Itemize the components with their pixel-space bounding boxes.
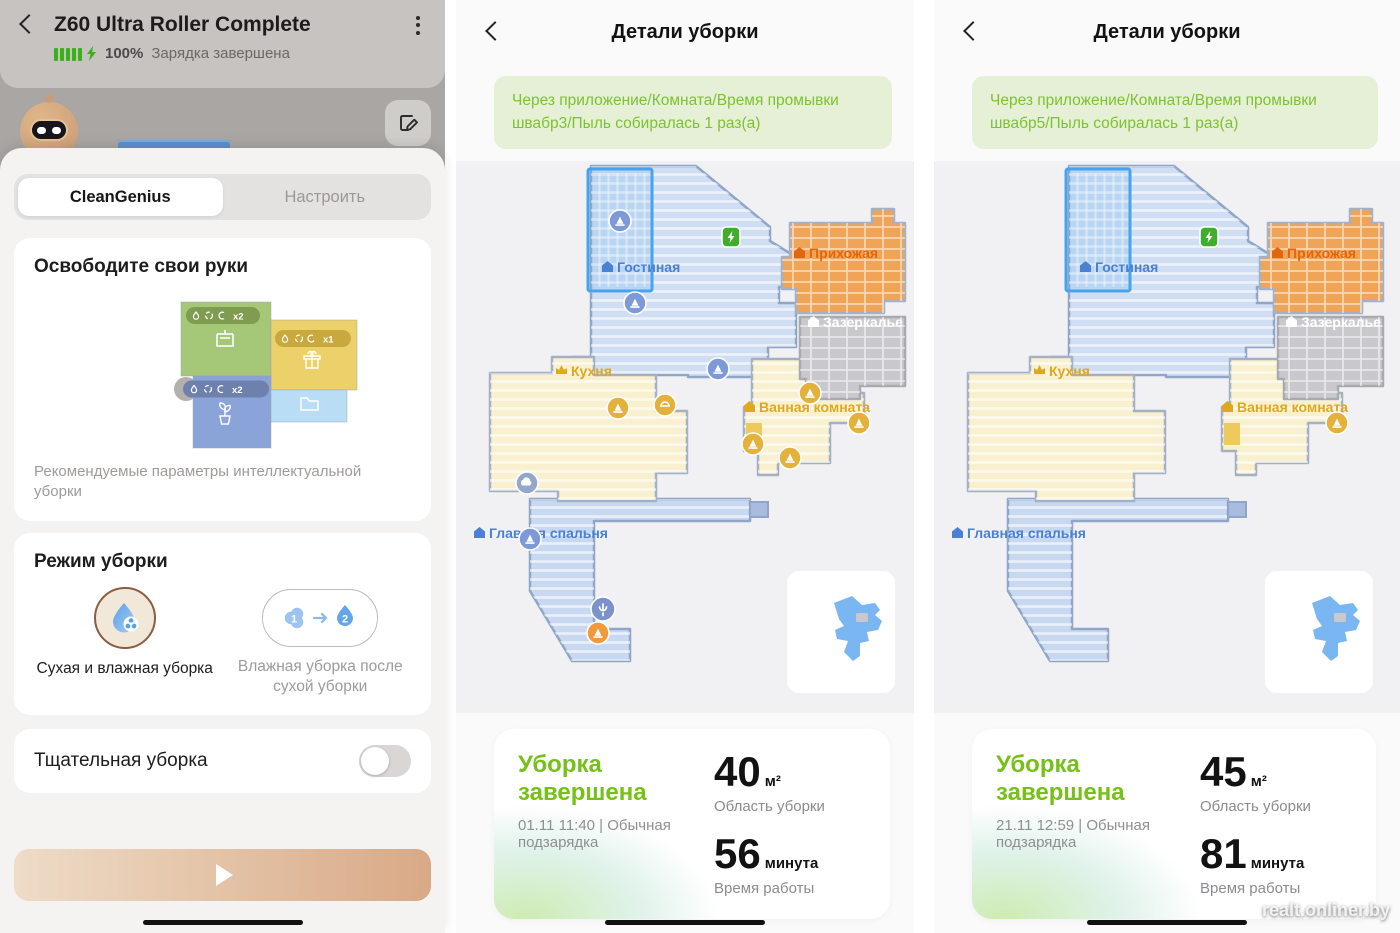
charge-status: Зарядка завершена [151, 45, 290, 62]
mode-wet-after-dry-label: Влажная уборка после сухой уборки [230, 657, 412, 697]
map-edit-icon [396, 111, 420, 135]
illu-room-lightblue [271, 390, 347, 422]
cleaning-status: Уборка завершена [996, 751, 1200, 807]
floor-map-2[interactable] [934, 161, 1400, 713]
mode-wet-after-dry[interactable]: 1 2 Влажная уборка после сухой уборки [230, 587, 412, 697]
illu-badge-blue: x2 [174, 377, 269, 401]
screenshot-stage: Z60 Ultra Roller Complete 100% Зарядка з… [0, 0, 1400, 933]
clean-mode-title: Режим уборки [34, 551, 411, 573]
svg-text:Кухня: Кухня [571, 363, 612, 379]
mini-map-thumbnail[interactable] [787, 571, 895, 693]
back-icon[interactable] [958, 19, 984, 45]
room-bedroom[interactable] [530, 499, 768, 661]
label-mirror: Зазеркалье [808, 314, 903, 330]
cleaning-result-card: Уборка завершена 01.11 11:40 | Обычная п… [494, 729, 890, 919]
mode-dry-and-wet-icon [94, 587, 156, 649]
battery-icon [54, 46, 97, 61]
cleaning-datetime: 01.11 11:40 | Обычная подзарядка [518, 817, 714, 851]
svg-text:x2: x2 [233, 312, 244, 323]
cleaning-result-card: Уборка завершена 21.11 12:59 | Обычная п… [972, 729, 1376, 919]
page-title: Детали уборки [1093, 21, 1240, 44]
device-title: Z60 Ultra Roller Complete [54, 13, 405, 37]
mode-wet-after-dry-icon: 1 2 [262, 589, 378, 647]
mode-dry-and-wet-label: Сухая и влажная уборка [37, 659, 213, 679]
area-metric: 40м² Область уборки [714, 751, 866, 815]
page-title: Детали уборки [611, 21, 758, 44]
cleangenius-sheet: CleanGenius Настроить Освободите свои ру… [0, 148, 445, 933]
svg-text:x1: x1 [323, 335, 334, 346]
tab-cleangenius[interactable]: CleanGenius [18, 178, 223, 216]
cleaning-summary-banner: Через приложение/Комната/Время промывки … [972, 76, 1378, 149]
cleaning-summary-banner: Через приложение/Комната/Время промывки … [494, 76, 892, 149]
svg-text:Главная спальня: Главная спальня [489, 525, 608, 541]
map-edit-button[interactable] [385, 100, 431, 146]
smart-plan-illustration: x2 x1 [73, 288, 373, 456]
svg-text:Зазеркалье: Зазеркалье [823, 314, 903, 330]
hands-free-card: Освободите свои руки x2 [14, 238, 431, 521]
area-metric: 45м² Область уборки [1200, 751, 1352, 815]
time-metric: 81минута Время работы [1200, 833, 1352, 897]
back-icon[interactable] [14, 12, 40, 38]
play-icon [216, 864, 233, 886]
thorough-clean-toggle[interactable] [359, 745, 411, 777]
watermark: realt.onliner.by [1262, 900, 1390, 921]
charging-bolt-icon [86, 46, 97, 61]
hands-free-title: Освободите свои руки [34, 256, 411, 278]
clean-mode-card: Режим уборки [14, 533, 431, 715]
battery-percent: 100% [105, 45, 143, 62]
mode-dry-and-wet[interactable]: Сухая и влажная уборка [34, 587, 216, 697]
cleaning-detail-screen-1: Детали уборки Через приложение/Комната/В… [456, 0, 914, 933]
time-metric: 56минута Время работы [714, 833, 866, 897]
menu-icon[interactable] [405, 16, 431, 35]
hands-free-caption: Рекомендуемые параметры интеллектуальной… [34, 462, 411, 503]
thorough-clean-label: Тщательная уборка [34, 750, 208, 772]
device-header: Z60 Ultra Roller Complete 100% Зарядка з… [0, 0, 445, 88]
svg-text:1: 1 [291, 613, 297, 625]
home-indicator [143, 920, 303, 925]
tab-customize[interactable]: Настроить [223, 178, 428, 216]
cleaning-detail-screen-2: Детали уборки Через приложение/Комната/В… [934, 0, 1400, 933]
cleaning-status: Уборка завершена [518, 751, 714, 807]
illu-badge-yellow: x1 [275, 330, 351, 347]
thorough-clean-card: Тщательная уборка [14, 729, 431, 793]
svg-text:Гостиная: Гостиная [617, 259, 680, 275]
floor-map-1[interactable]: Гостиная Прихожая Зазеркалье Кухня [456, 161, 914, 713]
home-indicator [605, 920, 765, 925]
svg-text:Прихожая: Прихожая [809, 245, 878, 261]
home-indicator [1087, 920, 1247, 925]
charging-dock-icon [722, 227, 740, 247]
illu-badge-green: x2 [186, 307, 260, 324]
mode-tabs: CleanGenius Настроить [14, 174, 431, 220]
obstacle-markers [1326, 412, 1348, 434]
room-hallway[interactable] [782, 209, 905, 313]
svg-text:x2: x2 [232, 385, 243, 396]
cleangenius-screen: Z60 Ultra Roller Complete 100% Зарядка з… [0, 0, 445, 933]
back-icon[interactable] [480, 19, 506, 45]
cleaning-datetime: 21.11 12:59 | Обычная подзарядка [996, 817, 1200, 851]
start-cleaning-button[interactable] [14, 849, 431, 901]
svg-text:2: 2 [342, 613, 348, 625]
